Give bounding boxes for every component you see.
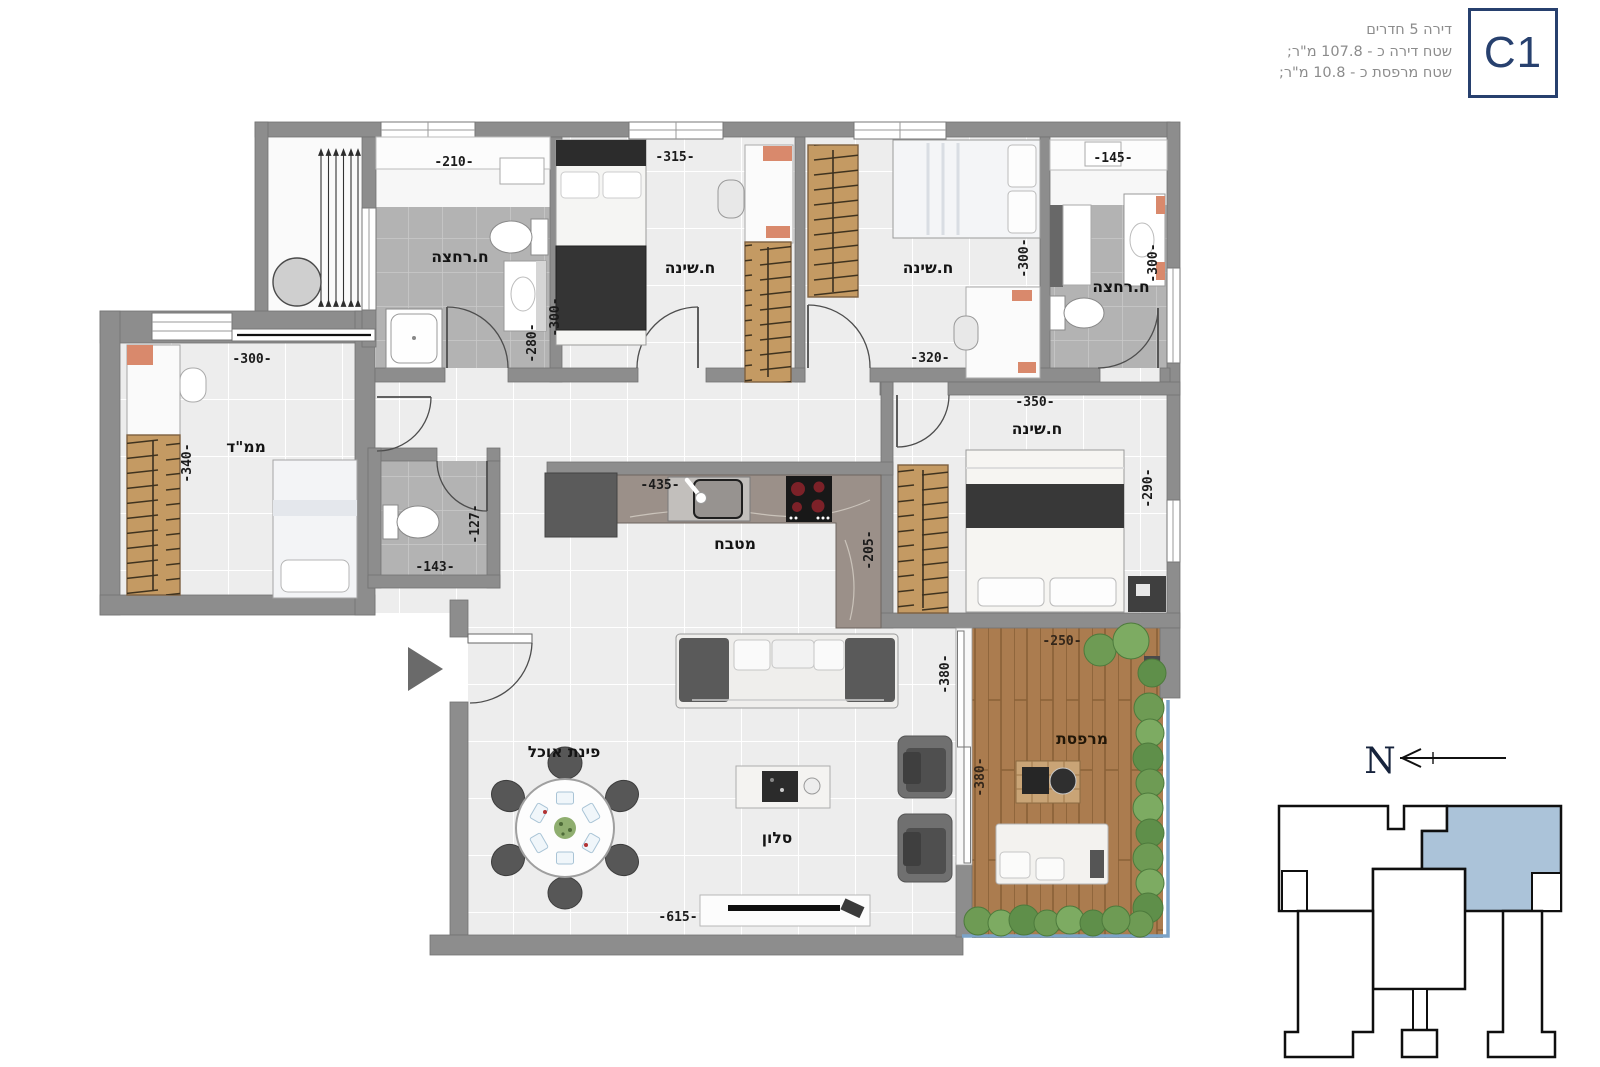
header-line-apartment-area: שטח דירה כ - 107.8 מ"ר; xyxy=(1279,42,1452,64)
window-bath2 xyxy=(1167,268,1180,363)
window-bath1 xyxy=(381,122,475,139)
floorplan-page: דירה 5 חדרים שטח דירה כ - 107.8 מ"ר; שטח… xyxy=(0,0,1600,1067)
room-label-mamad: ממ"ד xyxy=(226,438,266,456)
toilet-icon xyxy=(383,505,439,539)
window-bed1 xyxy=(629,122,723,139)
dim-kitchen-h: -205- xyxy=(862,530,877,569)
dim-wc-h: -127- xyxy=(468,504,483,543)
sofa-icon xyxy=(676,634,898,708)
wardrobe-icon xyxy=(808,145,858,297)
dim-bath2-w: -145- xyxy=(1093,151,1132,166)
sliding-door-balcony xyxy=(956,628,972,865)
dim-living-w: -615- xyxy=(658,910,697,925)
keyplan xyxy=(1279,806,1561,1057)
room-label-dining: פינת אוכל xyxy=(528,743,601,761)
entry-arrow xyxy=(408,647,443,691)
toilet-icon xyxy=(1050,296,1104,330)
door-service-bath1 xyxy=(362,208,376,310)
wardrobe-icon xyxy=(127,435,180,595)
unit-label-box: C1 xyxy=(1468,8,1558,98)
wall-mamad-left xyxy=(100,311,120,615)
dim-bed1-h: -300- xyxy=(548,297,563,336)
dim-mamad-h: -340- xyxy=(180,443,195,482)
header-line-rooms: דירה 5 חדרים xyxy=(1279,20,1452,42)
window-mamad xyxy=(152,313,232,340)
shower-glass xyxy=(1050,205,1063,287)
sink-icon xyxy=(668,477,750,521)
wall-service-left xyxy=(255,122,268,334)
north-arrow-icon xyxy=(1400,749,1506,767)
bath2-cabinet xyxy=(1063,205,1091,285)
north-letter: N xyxy=(1364,741,1396,782)
wardrobe-icon xyxy=(898,465,948,613)
room-label-bed1: ח.שינה xyxy=(665,259,716,277)
bed-icon xyxy=(273,460,357,598)
keyplan-notch xyxy=(1532,873,1561,911)
dim-balcony-w: -250- xyxy=(1042,634,1081,649)
dim-bath2-h: -300- xyxy=(1146,243,1161,282)
unit-label: C1 xyxy=(1484,28,1542,78)
keyplan-wing-right xyxy=(1488,911,1555,1057)
compass: N xyxy=(1364,741,1506,782)
dim-bed1-w: -315- xyxy=(655,150,694,165)
dim-master-w: -350- xyxy=(1015,395,1054,410)
header-line-balcony-area: שטח מרפסת כ - 10.8 מ"ר; xyxy=(1279,63,1452,85)
room-label-bed2: ח.שינה xyxy=(903,259,954,277)
dim-master-h: -290- xyxy=(1141,468,1156,507)
window-master xyxy=(1167,500,1180,562)
room-label-kitchen: מטבח xyxy=(714,535,756,553)
window-bed2 xyxy=(854,122,946,139)
wall-living-left xyxy=(450,702,468,935)
wall-living-bottom xyxy=(430,935,963,955)
armchair-icon xyxy=(898,736,952,798)
room-label-bath2: ח.רחצה xyxy=(1092,278,1149,296)
room-label-living: סלון xyxy=(762,829,793,847)
dim-bath1-w: -210- xyxy=(434,155,473,170)
bed-icon xyxy=(966,450,1124,612)
toilet-icon xyxy=(490,219,548,255)
floorplan-svg: ח.רחצה ח.שינה ח.שינה ח.רחצה ממ"ד מטבח ח.… xyxy=(0,0,1600,1067)
bed-icon xyxy=(893,140,1040,238)
armchair-icon xyxy=(898,814,952,882)
dim-bed2-w: -320- xyxy=(910,351,949,366)
wall-wc-bottom xyxy=(368,575,500,588)
tv-console-icon xyxy=(700,895,870,926)
sliding-track-entry xyxy=(232,329,375,341)
dim-bath1-h: -280- xyxy=(525,323,540,362)
room-label-master: ח.שינה xyxy=(1012,420,1063,438)
wall-kitchen-master xyxy=(881,382,893,628)
bath1-cabinet xyxy=(500,158,544,184)
wall-bed1-bed2 xyxy=(795,137,805,382)
boiler xyxy=(273,258,321,306)
wc-fixtures xyxy=(383,505,439,539)
outdoor-table-icon xyxy=(1016,761,1080,803)
stove-icon xyxy=(786,476,832,522)
dim-balcony-h: -380- xyxy=(973,757,988,796)
dim-wc-w: -143- xyxy=(415,560,454,575)
fridge-icon xyxy=(545,473,617,537)
wardrobe-icon xyxy=(745,242,791,382)
dim-mamad-w: -300- xyxy=(232,352,271,367)
bath1-vanity xyxy=(504,261,546,331)
nightstand-icon xyxy=(1128,576,1166,612)
keyplan-tower xyxy=(1373,869,1465,989)
centerpiece xyxy=(554,817,576,839)
dim-living-h: -380- xyxy=(938,654,953,693)
wall-balcony-right xyxy=(1160,628,1180,698)
desk-icon xyxy=(954,287,1040,378)
bed-icon xyxy=(556,140,646,345)
dim-kitchen-w: -435- xyxy=(640,478,679,493)
shower-icon xyxy=(386,309,442,368)
wall-bed2-bath2 xyxy=(1040,137,1050,382)
room-label-bath1: ח.רחצה xyxy=(431,248,488,266)
coffee-table-icon xyxy=(736,766,830,808)
dim-bed2-h: -300- xyxy=(1017,238,1032,277)
keyplan-foot-middle xyxy=(1402,1030,1437,1057)
plan-header: דירה 5 חדרים שטח דירה כ - 107.8 מ"ר; שטח… xyxy=(1279,20,1452,85)
keyplan-wing-left xyxy=(1285,911,1373,1057)
outdoor-sofa-icon xyxy=(996,824,1108,884)
room-label-balcony: מרפסת xyxy=(1056,730,1108,748)
